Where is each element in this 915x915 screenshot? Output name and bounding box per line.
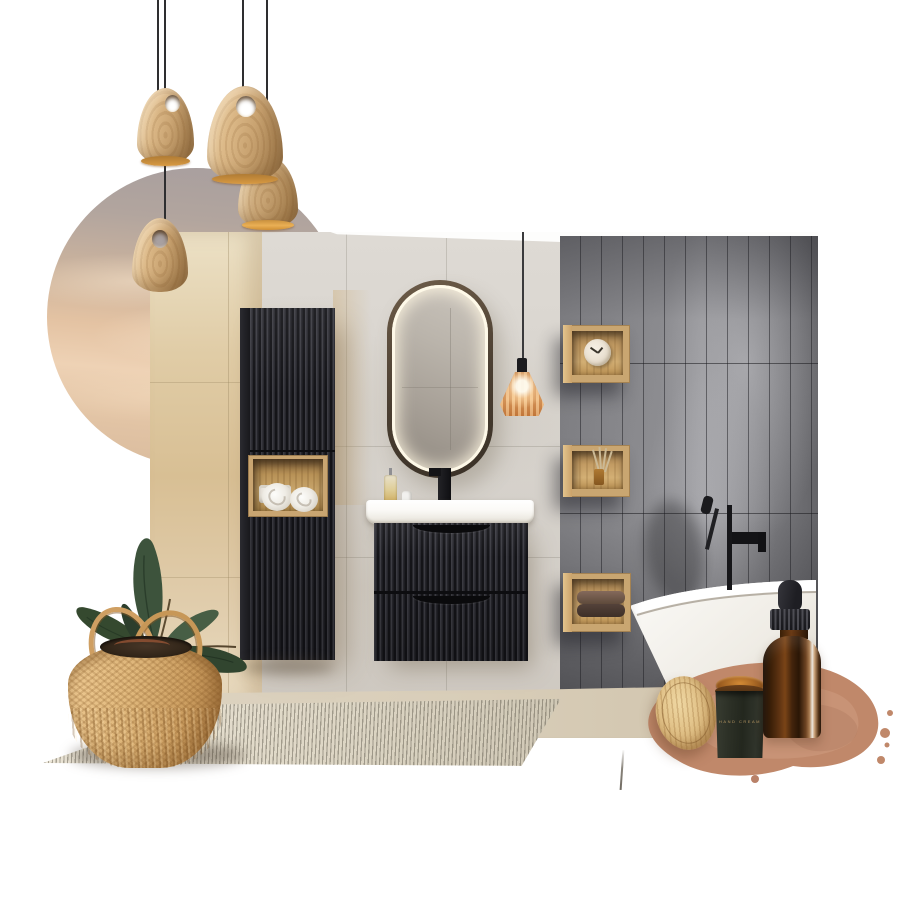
diffuser-bottle [594,469,604,485]
alarm-clock [584,339,611,366]
lamp-glow-rim [242,220,294,230]
dropper-bulb [778,580,802,612]
dropper-ridged-collar [770,609,810,630]
basin-mixer-spout [429,468,441,476]
jar-labeled-body: HAND CREAM [714,691,766,758]
cube-side-face [563,325,572,383]
cube-side-face [563,573,572,632]
seagrass-belly-basket [68,644,222,768]
pendant-cord [242,0,244,90]
mirror-reflection-line [450,308,451,451]
pendant-cord [522,232,524,360]
tub-filler-spout-end [758,532,766,552]
amber-cosmetic-jar: HAND CREAM [714,676,766,758]
vanity-countertop-basin [366,500,534,524]
tub-filler-column [727,505,732,590]
drawer-handle-notch [413,525,490,533]
rolled-towel [290,487,318,512]
cabinet-oak-niche [248,455,328,517]
lamp-glow-rim [212,174,277,184]
clock-minute-hand [590,347,598,353]
mirror-glass [392,285,488,473]
clock-hour-hand [597,347,603,354]
pendant-socket [517,358,527,374]
brown-towel [577,591,625,604]
lamp-cutout-hole [236,96,256,117]
wood-pendant-lamp [137,88,194,164]
rolled-towel [262,483,292,511]
cube-interior [572,451,623,489]
brown-towel [577,604,625,617]
stray-bristle-mark [620,750,625,790]
pendant-cord [157,0,159,92]
drawer-handle-notch [413,596,490,604]
black-fluted-vanity [374,523,528,661]
mirror-reflection-line [402,387,479,388]
cube-side-face [563,445,572,497]
niche-interior [253,459,323,511]
cube-interior [572,331,623,375]
amber-dropper-bottle [763,580,821,738]
lamp-cutout-hole [165,95,180,112]
diffuser-reed [598,447,601,469]
terracotta-pot-rim [114,639,170,652]
led-oval-mirror [387,280,493,478]
cabinet-door-seam [250,450,335,452]
oak-cube-shelf-clock [563,325,630,383]
wood-pendant-lamp [207,86,283,182]
warm-light-patch [333,290,371,505]
moodboard-collage: HAND CREAM [0,0,915,915]
dropper-glass-body [763,636,821,738]
jar-label: HAND CREAM [714,719,766,724]
lamp-glow-rim [141,156,190,166]
cube-interior [572,579,624,624]
lid-inner-ring [656,678,716,749]
lamp-cutout-hole [152,230,168,248]
oak-cube-shelf-towels [563,573,631,632]
drawer-seam [374,591,528,594]
oak-cube-shelf-diffuser [563,445,630,497]
